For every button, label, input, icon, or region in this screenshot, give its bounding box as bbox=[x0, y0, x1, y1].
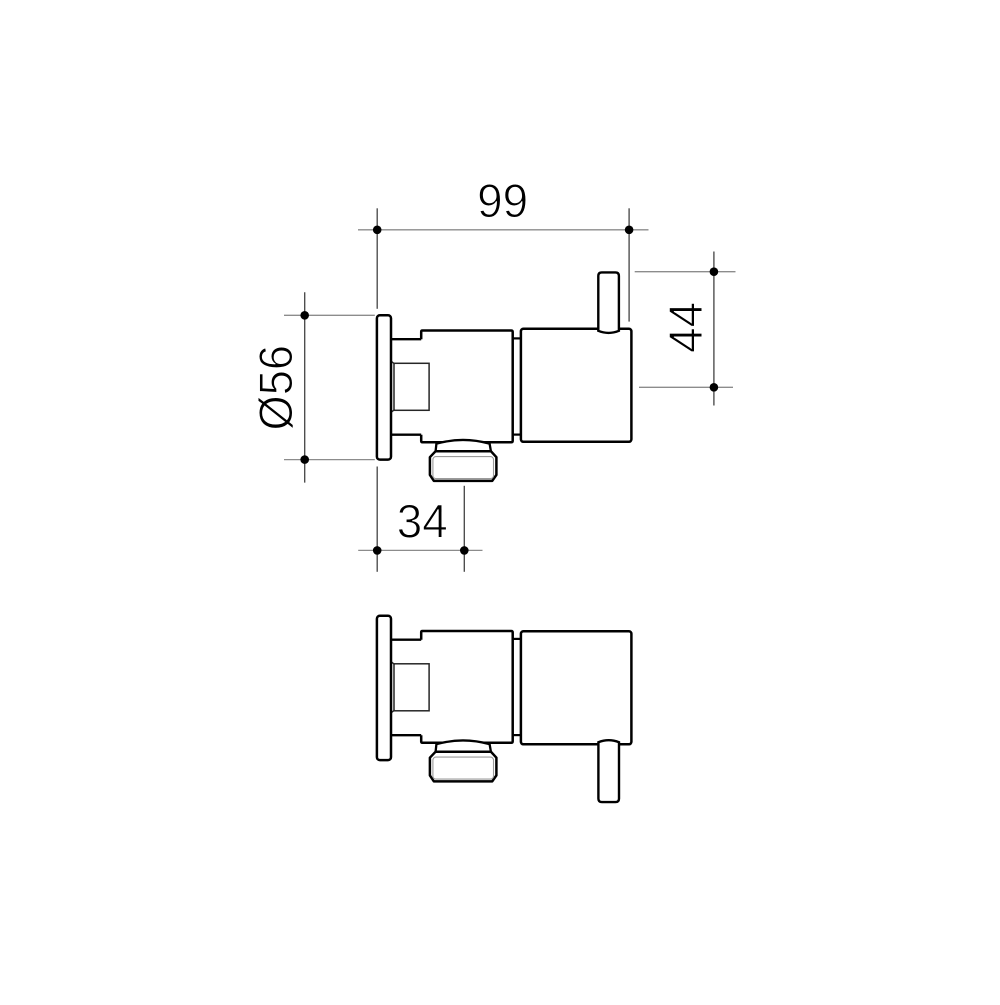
svg-text:Ø56: Ø56 bbox=[249, 345, 302, 431]
svg-text:34: 34 bbox=[397, 495, 448, 548]
svg-text:44: 44 bbox=[659, 302, 712, 353]
svg-text:99: 99 bbox=[477, 174, 528, 227]
